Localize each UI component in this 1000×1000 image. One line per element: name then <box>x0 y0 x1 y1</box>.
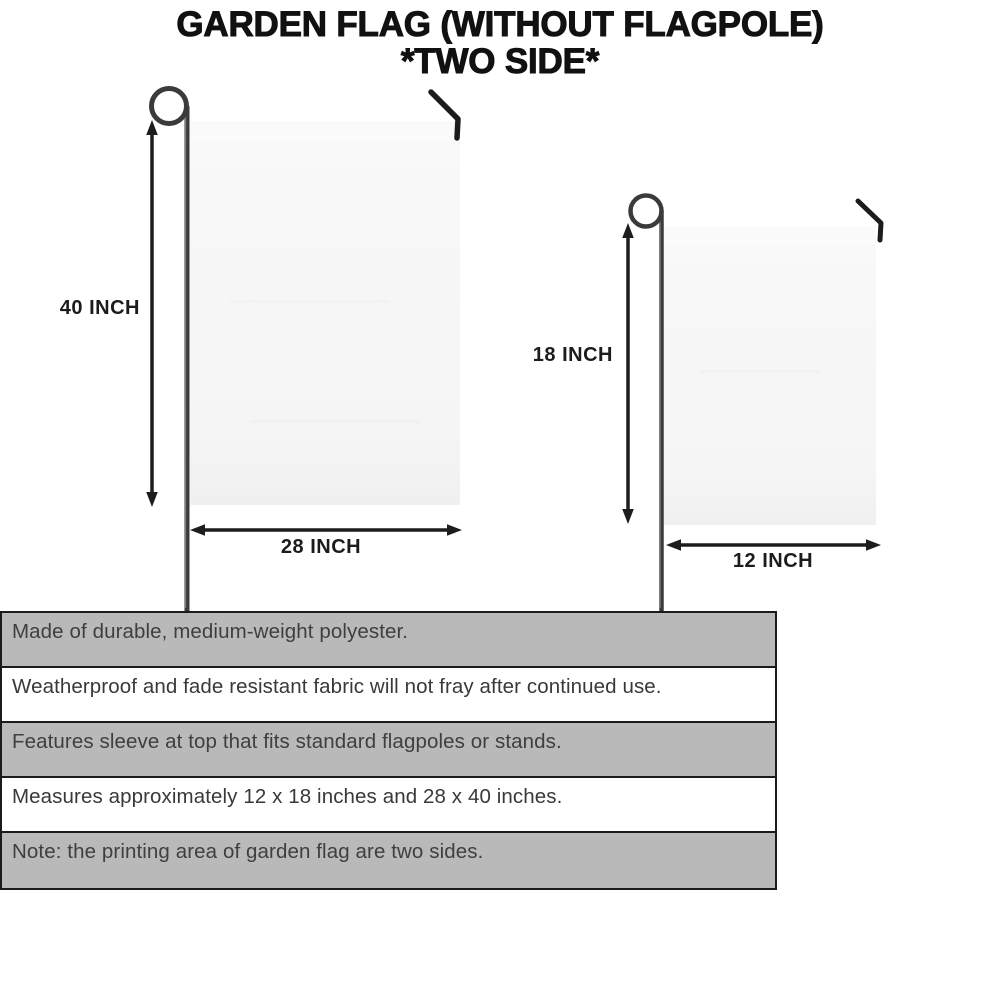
spec-table: Made of durable, medium-weight polyester… <box>0 611 777 890</box>
large-flag-height-label: 40 INCH <box>30 297 140 320</box>
spec-row-note: Note: the printing area of garden flag a… <box>2 833 775 888</box>
small-flag-height-arrow <box>622 223 634 524</box>
large-flag-pole-loop <box>152 89 187 124</box>
spec-row-material: Made of durable, medium-weight polyester… <box>2 613 775 668</box>
spec-text: Weatherproof and fade resistant fabric w… <box>12 675 662 698</box>
small-flag-fabric <box>663 226 876 525</box>
fold-mark <box>250 420 420 423</box>
small-flag-graphic <box>622 196 881 612</box>
spec-row-weatherproof: Weatherproof and fade resistant fabric w… <box>2 668 775 723</box>
flag-size-diagram <box>0 0 1000 611</box>
large-flag-width-label: 28 INCH <box>231 536 411 559</box>
spec-text: Measures approximately 12 x 18 inches an… <box>12 785 562 808</box>
fold-mark <box>700 370 820 373</box>
small-flag-width-label: 12 INCH <box>683 550 863 573</box>
small-flag-sleeve-seam <box>663 240 876 242</box>
large-flag-sleeve-seam <box>190 137 460 139</box>
product-info-image: GARDEN FLAG (WITHOUT FLAGPOLE) *TWO SIDE… <box>0 0 1000 1000</box>
spec-row-measurements: Measures approximately 12 x 18 inches an… <box>2 778 775 833</box>
large-flag-graphic <box>146 89 462 612</box>
fold-mark <box>230 300 390 303</box>
spec-text: Note: the printing area of garden flag a… <box>12 840 483 863</box>
large-flag-width-arrow <box>190 524 462 536</box>
small-flag-height-label: 18 INCH <box>503 344 613 367</box>
large-flag-height-arrow <box>146 120 158 507</box>
spec-text: Features sleeve at top that fits standar… <box>12 730 562 753</box>
spec-row-sleeve: Features sleeve at top that fits standar… <box>2 723 775 778</box>
large-flag-fabric <box>190 121 460 505</box>
spec-text: Made of durable, medium-weight polyester… <box>12 620 408 643</box>
small-flag-pole-loop <box>631 196 662 227</box>
